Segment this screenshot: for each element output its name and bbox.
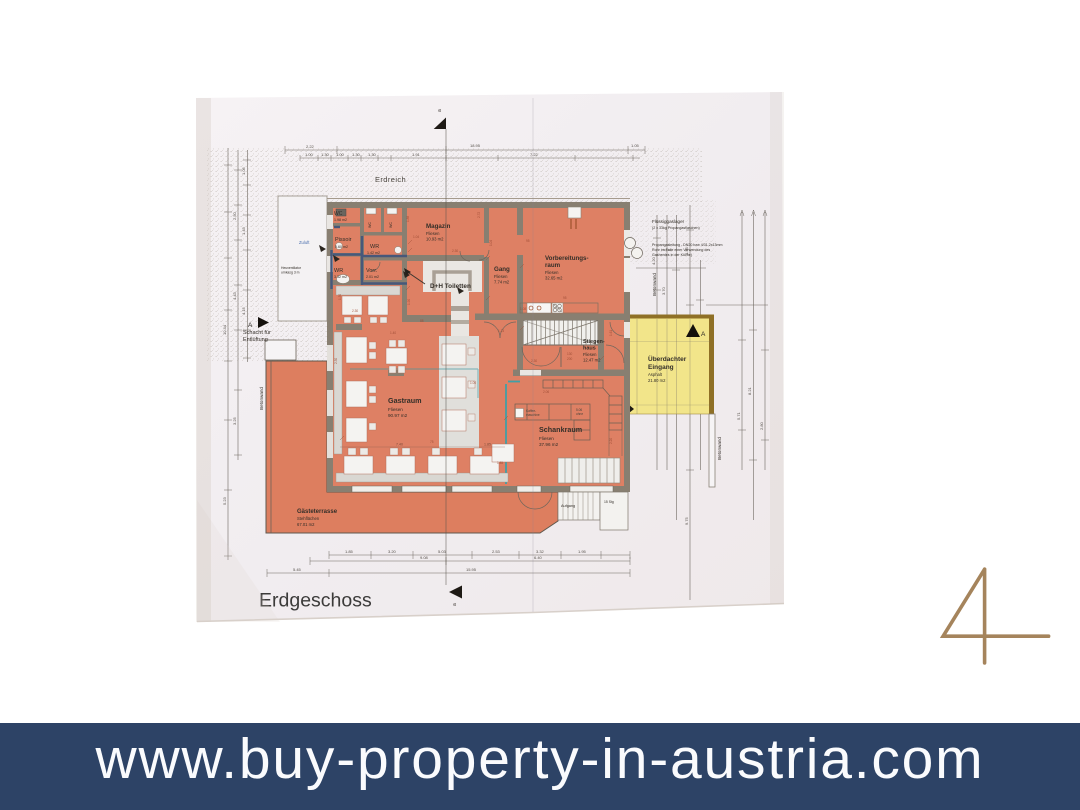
- svg-text:7.22: 7.22: [530, 152, 539, 157]
- svg-text:ohne: ohne: [576, 412, 583, 416]
- svg-text:D+H Toiletten: D+H Toiletten: [430, 283, 471, 290]
- svg-text:1.00: 1.00: [305, 152, 314, 157]
- svg-text:Fliesen: Fliesen: [583, 352, 597, 357]
- svg-text:1.05: 1.05: [631, 143, 640, 148]
- svg-text:Rohr im Falle einer Verwendung: Rohr im Falle einer Verwendung des: [652, 248, 710, 252]
- svg-text:Magazin: Magazin: [426, 223, 451, 230]
- svg-text:1.43: 1.43: [241, 226, 246, 235]
- svg-text:Stiegen-: Stiegen-: [583, 339, 605, 345]
- svg-text:Betonwand: Betonwand: [652, 273, 657, 296]
- svg-text:32.65 m2: 32.65 m2: [545, 276, 563, 281]
- svg-text:1.85: 1.85: [345, 549, 354, 554]
- svg-text:Gang: Gang: [494, 266, 510, 273]
- svg-text:Zuluft: Zuluft: [299, 240, 310, 245]
- svg-text:1.23: 1.23: [498, 329, 504, 333]
- svg-text:1.40: 1.40: [390, 331, 396, 335]
- svg-text:5.03: 5.03: [438, 549, 447, 554]
- svg-text:Gästeterrasse: Gästeterrasse: [297, 509, 338, 515]
- svg-text:1.95: 1.95: [578, 549, 587, 554]
- svg-text:88: 88: [420, 319, 424, 323]
- svg-text:1.88: 1.88: [406, 216, 410, 222]
- svg-text:WR: WR: [334, 268, 343, 274]
- svg-text:5.23: 5.23: [222, 496, 227, 505]
- svg-text:1.04: 1.04: [489, 240, 493, 246]
- svg-text:1.30: 1.30: [352, 152, 361, 157]
- svg-text:2.22: 2.22: [306, 144, 315, 149]
- svg-text:8.21: 8.21: [747, 386, 752, 395]
- svg-text:Schankraum: Schankraum: [539, 425, 582, 434]
- svg-text:2.30: 2.30: [334, 358, 338, 364]
- svg-text:75: 75: [430, 440, 434, 444]
- svg-text:Betonwand: Betonwand: [259, 387, 264, 410]
- svg-text:Stehflächen: Stehflächen: [297, 516, 320, 521]
- svg-text:Fliesen: Fliesen: [426, 231, 440, 236]
- svg-text:Fliesen: Fliesen: [494, 274, 508, 279]
- svg-text:2.30: 2.30: [352, 309, 358, 313]
- svg-text:7.40: 7.40: [396, 443, 403, 447]
- svg-text:Betonwand: Betonwand: [717, 437, 722, 460]
- svg-text:WC: WC: [368, 222, 372, 228]
- svg-text:1.42 m2: 1.42 m2: [367, 251, 380, 255]
- svg-text:Flüssiggaslager: Flüssiggaslager: [652, 219, 685, 224]
- svg-text:5.71: 5.71: [736, 411, 741, 420]
- svg-text:haus: haus: [583, 346, 596, 352]
- svg-text:Erdgeschoss: Erdgeschoss: [259, 590, 372, 612]
- svg-text:4.15: 4.15: [241, 306, 246, 315]
- svg-text:9.75: 9.75: [684, 516, 689, 525]
- svg-text:4.43: 4.43: [232, 291, 237, 300]
- svg-text:37.96 m2: 37.96 m2: [539, 442, 559, 447]
- svg-text:Schacht für: Schacht für: [243, 330, 271, 336]
- svg-text:2.20: 2.20: [609, 438, 613, 444]
- svg-text:1.00: 1.00: [336, 152, 345, 157]
- svg-text:Eingang: Eingang: [648, 364, 674, 371]
- svg-text:4.20: 4.20: [651, 256, 656, 265]
- svg-text:130: 130: [567, 352, 573, 356]
- svg-text:A: A: [701, 331, 706, 338]
- svg-text:Überdachter: Überdachter: [648, 354, 687, 363]
- svg-text:3.32: 3.32: [536, 549, 545, 554]
- svg-text:2.72: 2.72: [477, 212, 481, 218]
- svg-text:Entlüftung: Entlüftung: [243, 337, 268, 343]
- svg-text:Propangasleitung - DN20 bzw 4/: Propangasleitung - DN20 bzw 4/31,2x13mm: [652, 243, 723, 247]
- svg-text:1.30: 1.30: [338, 294, 342, 300]
- svg-text:1.30: 1.30: [368, 152, 377, 157]
- svg-text:2.30: 2.30: [452, 249, 458, 253]
- svg-text:Vorbereitungs-: Vorbereitungs-: [545, 255, 589, 262]
- svg-text:15 Stg: 15 Stg: [604, 500, 614, 504]
- svg-text:umkasg 3 m: umkasg 3 m: [281, 271, 300, 275]
- svg-text:95: 95: [563, 296, 567, 300]
- svg-text:1.90: 1.90: [407, 299, 411, 305]
- svg-text:Erdreich: Erdreich: [375, 175, 406, 184]
- svg-text:67.01 m2: 67.01 m2: [297, 522, 315, 527]
- svg-text:2.53: 2.53: [492, 549, 501, 554]
- svg-text:2.30: 2.30: [531, 359, 537, 363]
- svg-text:Fliesen: Fliesen: [545, 270, 559, 275]
- svg-text:1.91: 1.91: [412, 152, 421, 157]
- svg-text:90.97 m2: 90.97 m2: [388, 413, 408, 418]
- svg-text:1.04: 1.04: [413, 235, 419, 239]
- svg-text:1.30: 1.30: [321, 152, 330, 157]
- svg-text:Fliesen: Fliesen: [388, 407, 403, 412]
- svg-text:1.08: 1.08: [520, 307, 526, 311]
- svg-text:2.01 m2: 2.01 m2: [366, 275, 379, 279]
- svg-text:1.85: 1.85: [497, 461, 503, 465]
- svg-text:3.25: 3.25: [232, 416, 237, 425]
- svg-text:2.06: 2.06: [543, 390, 549, 394]
- svg-text:21.80 m2: 21.80 m2: [648, 378, 666, 383]
- svg-text:2.80: 2.80: [759, 421, 764, 430]
- svg-text:a: a: [452, 603, 458, 606]
- svg-text:Aufgang: Aufgang: [561, 504, 575, 508]
- svg-text:15.95: 15.95: [466, 567, 477, 572]
- svg-text:(2 x 33kg Propangasflaschen): (2 x 33kg Propangasflaschen): [652, 226, 700, 230]
- svg-text:WC: WC: [334, 211, 343, 217]
- svg-text:Fliesen: Fliesen: [539, 436, 554, 441]
- svg-text:3.20: 3.20: [388, 549, 397, 554]
- svg-text:1.98 m2: 1.98 m2: [334, 218, 347, 222]
- svg-text:18.95: 18.95: [470, 143, 481, 148]
- svg-text:a: a: [437, 109, 443, 112]
- svg-text:WC: WC: [389, 222, 393, 228]
- svg-text:raum: raum: [545, 262, 561, 269]
- svg-text:WR: WR: [370, 244, 379, 250]
- svg-text:3.32 m2: 3.32 m2: [334, 275, 347, 279]
- svg-text:Heuventilator: Heuventilator: [281, 266, 302, 270]
- svg-text:3.70: 3.70: [661, 286, 666, 295]
- svg-text:95: 95: [526, 239, 530, 243]
- svg-text:Pissoir: Pissoir: [335, 237, 352, 243]
- svg-text:12.47 m2: 12.47 m2: [583, 358, 601, 363]
- svg-text:5.45: 5.45: [293, 567, 302, 572]
- svg-text:7.74 m2: 7.74 m2: [494, 280, 510, 285]
- svg-text:6.40: 6.40: [534, 555, 543, 560]
- svg-text:9.08: 9.08: [420, 555, 429, 560]
- svg-text:Vorr.: Vorr.: [366, 268, 378, 274]
- svg-text:10.93 m2: 10.93 m2: [426, 237, 444, 242]
- svg-text:A: A: [248, 322, 253, 329]
- svg-text:1.85: 1.85: [484, 443, 491, 447]
- svg-text:2.50: 2.50: [232, 211, 237, 220]
- svg-text:10.44: 10.44: [222, 324, 227, 335]
- svg-text:1.61: 1.61: [609, 330, 613, 336]
- svg-text:200: 200: [567, 357, 573, 361]
- svg-text:1.00: 1.00: [470, 381, 476, 385]
- svg-text:1.05: 1.05: [241, 166, 246, 175]
- svg-text:Asphalt: Asphalt: [648, 372, 663, 377]
- svg-text:Gastraum: Gastraum: [388, 396, 422, 405]
- svg-text:Gasherdes in der Küche): Gasherdes in der Küche): [652, 253, 692, 257]
- svg-text:5.60 m2: 5.60 m2: [335, 245, 348, 249]
